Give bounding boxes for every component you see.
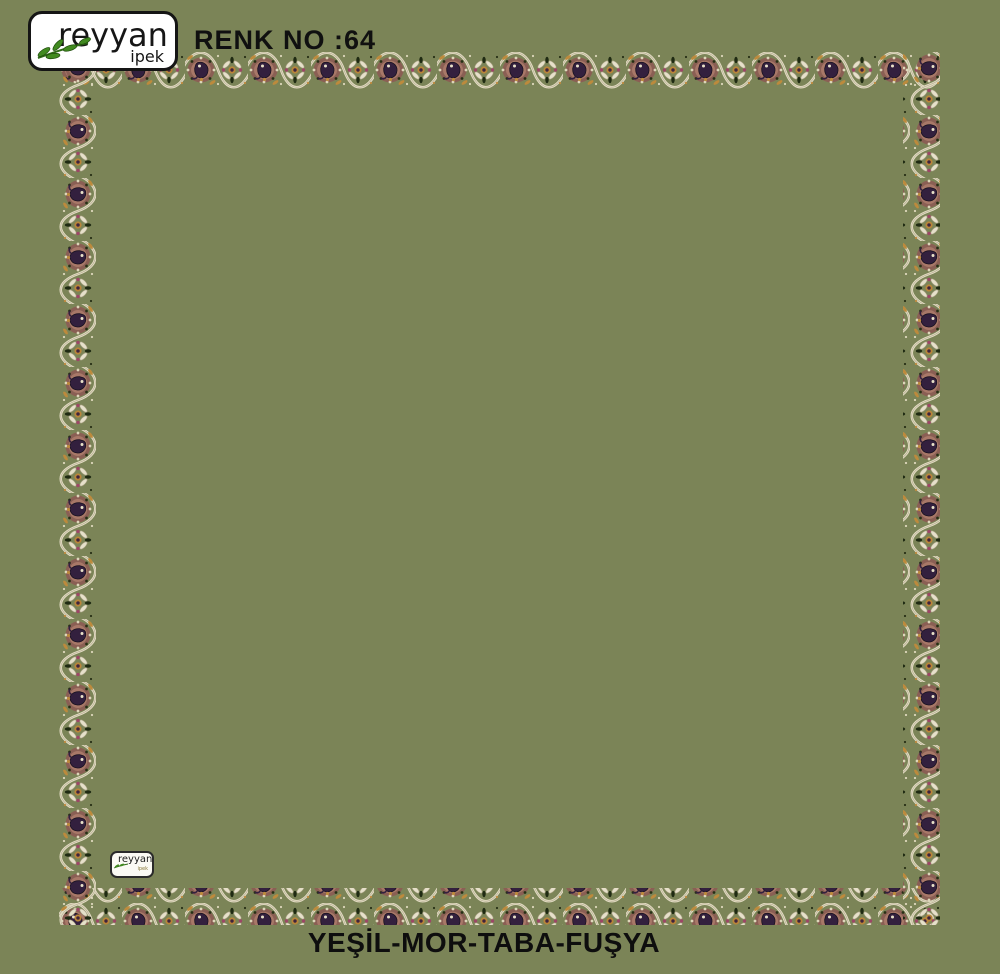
colorway-label: YEŞİL-MOR-TABA-FUŞYA <box>0 927 968 959</box>
scarf-product-image: reyyan ipek RENK NO :64 reyyan ipek <box>0 0 1000 974</box>
olive-branch-icon <box>34 31 96 66</box>
renk-no-label: RENK NO :64 <box>194 25 376 56</box>
scarf-border-frame <box>59 52 940 925</box>
paisley-border-pattern <box>59 52 940 925</box>
inner-olive-branch-icon <box>113 856 129 874</box>
brand-logo: reyyan ipek <box>28 11 178 71</box>
inner-tag-submark: ipek <box>137 866 148 872</box>
scarf-inner-tag: reyyan ipek <box>110 851 154 878</box>
brand-submark: ipek <box>130 47 164 66</box>
